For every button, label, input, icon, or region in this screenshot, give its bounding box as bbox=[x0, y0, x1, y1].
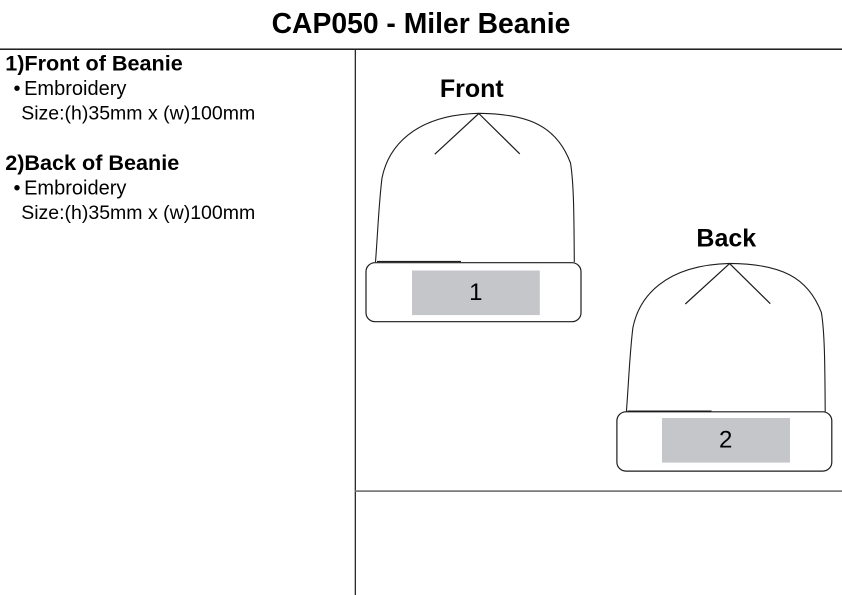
svg-text:CAP050 - Miler Beanie: CAP050 - Miler Beanie bbox=[272, 7, 571, 39]
svg-text:2)Back of Beanie: 2)Back of Beanie bbox=[5, 150, 179, 175]
svg-text:•: • bbox=[14, 78, 21, 100]
svg-text:1)Front of Beanie: 1)Front of Beanie bbox=[5, 51, 183, 76]
svg-text:1: 1 bbox=[469, 279, 482, 306]
svg-text:Size:(h)35mm x (w)100mm: Size:(h)35mm x (w)100mm bbox=[21, 202, 255, 224]
svg-text:Embroidery: Embroidery bbox=[24, 78, 126, 100]
svg-text:Back: Back bbox=[696, 225, 756, 253]
svg-text:Front: Front bbox=[440, 75, 505, 103]
svg-text:•: • bbox=[14, 177, 21, 199]
svg-text:Size:(h)35mm x (w)100mm: Size:(h)35mm x (w)100mm bbox=[21, 103, 255, 125]
svg-text:Embroidery: Embroidery bbox=[24, 177, 126, 199]
svg-text:2: 2 bbox=[719, 426, 732, 453]
